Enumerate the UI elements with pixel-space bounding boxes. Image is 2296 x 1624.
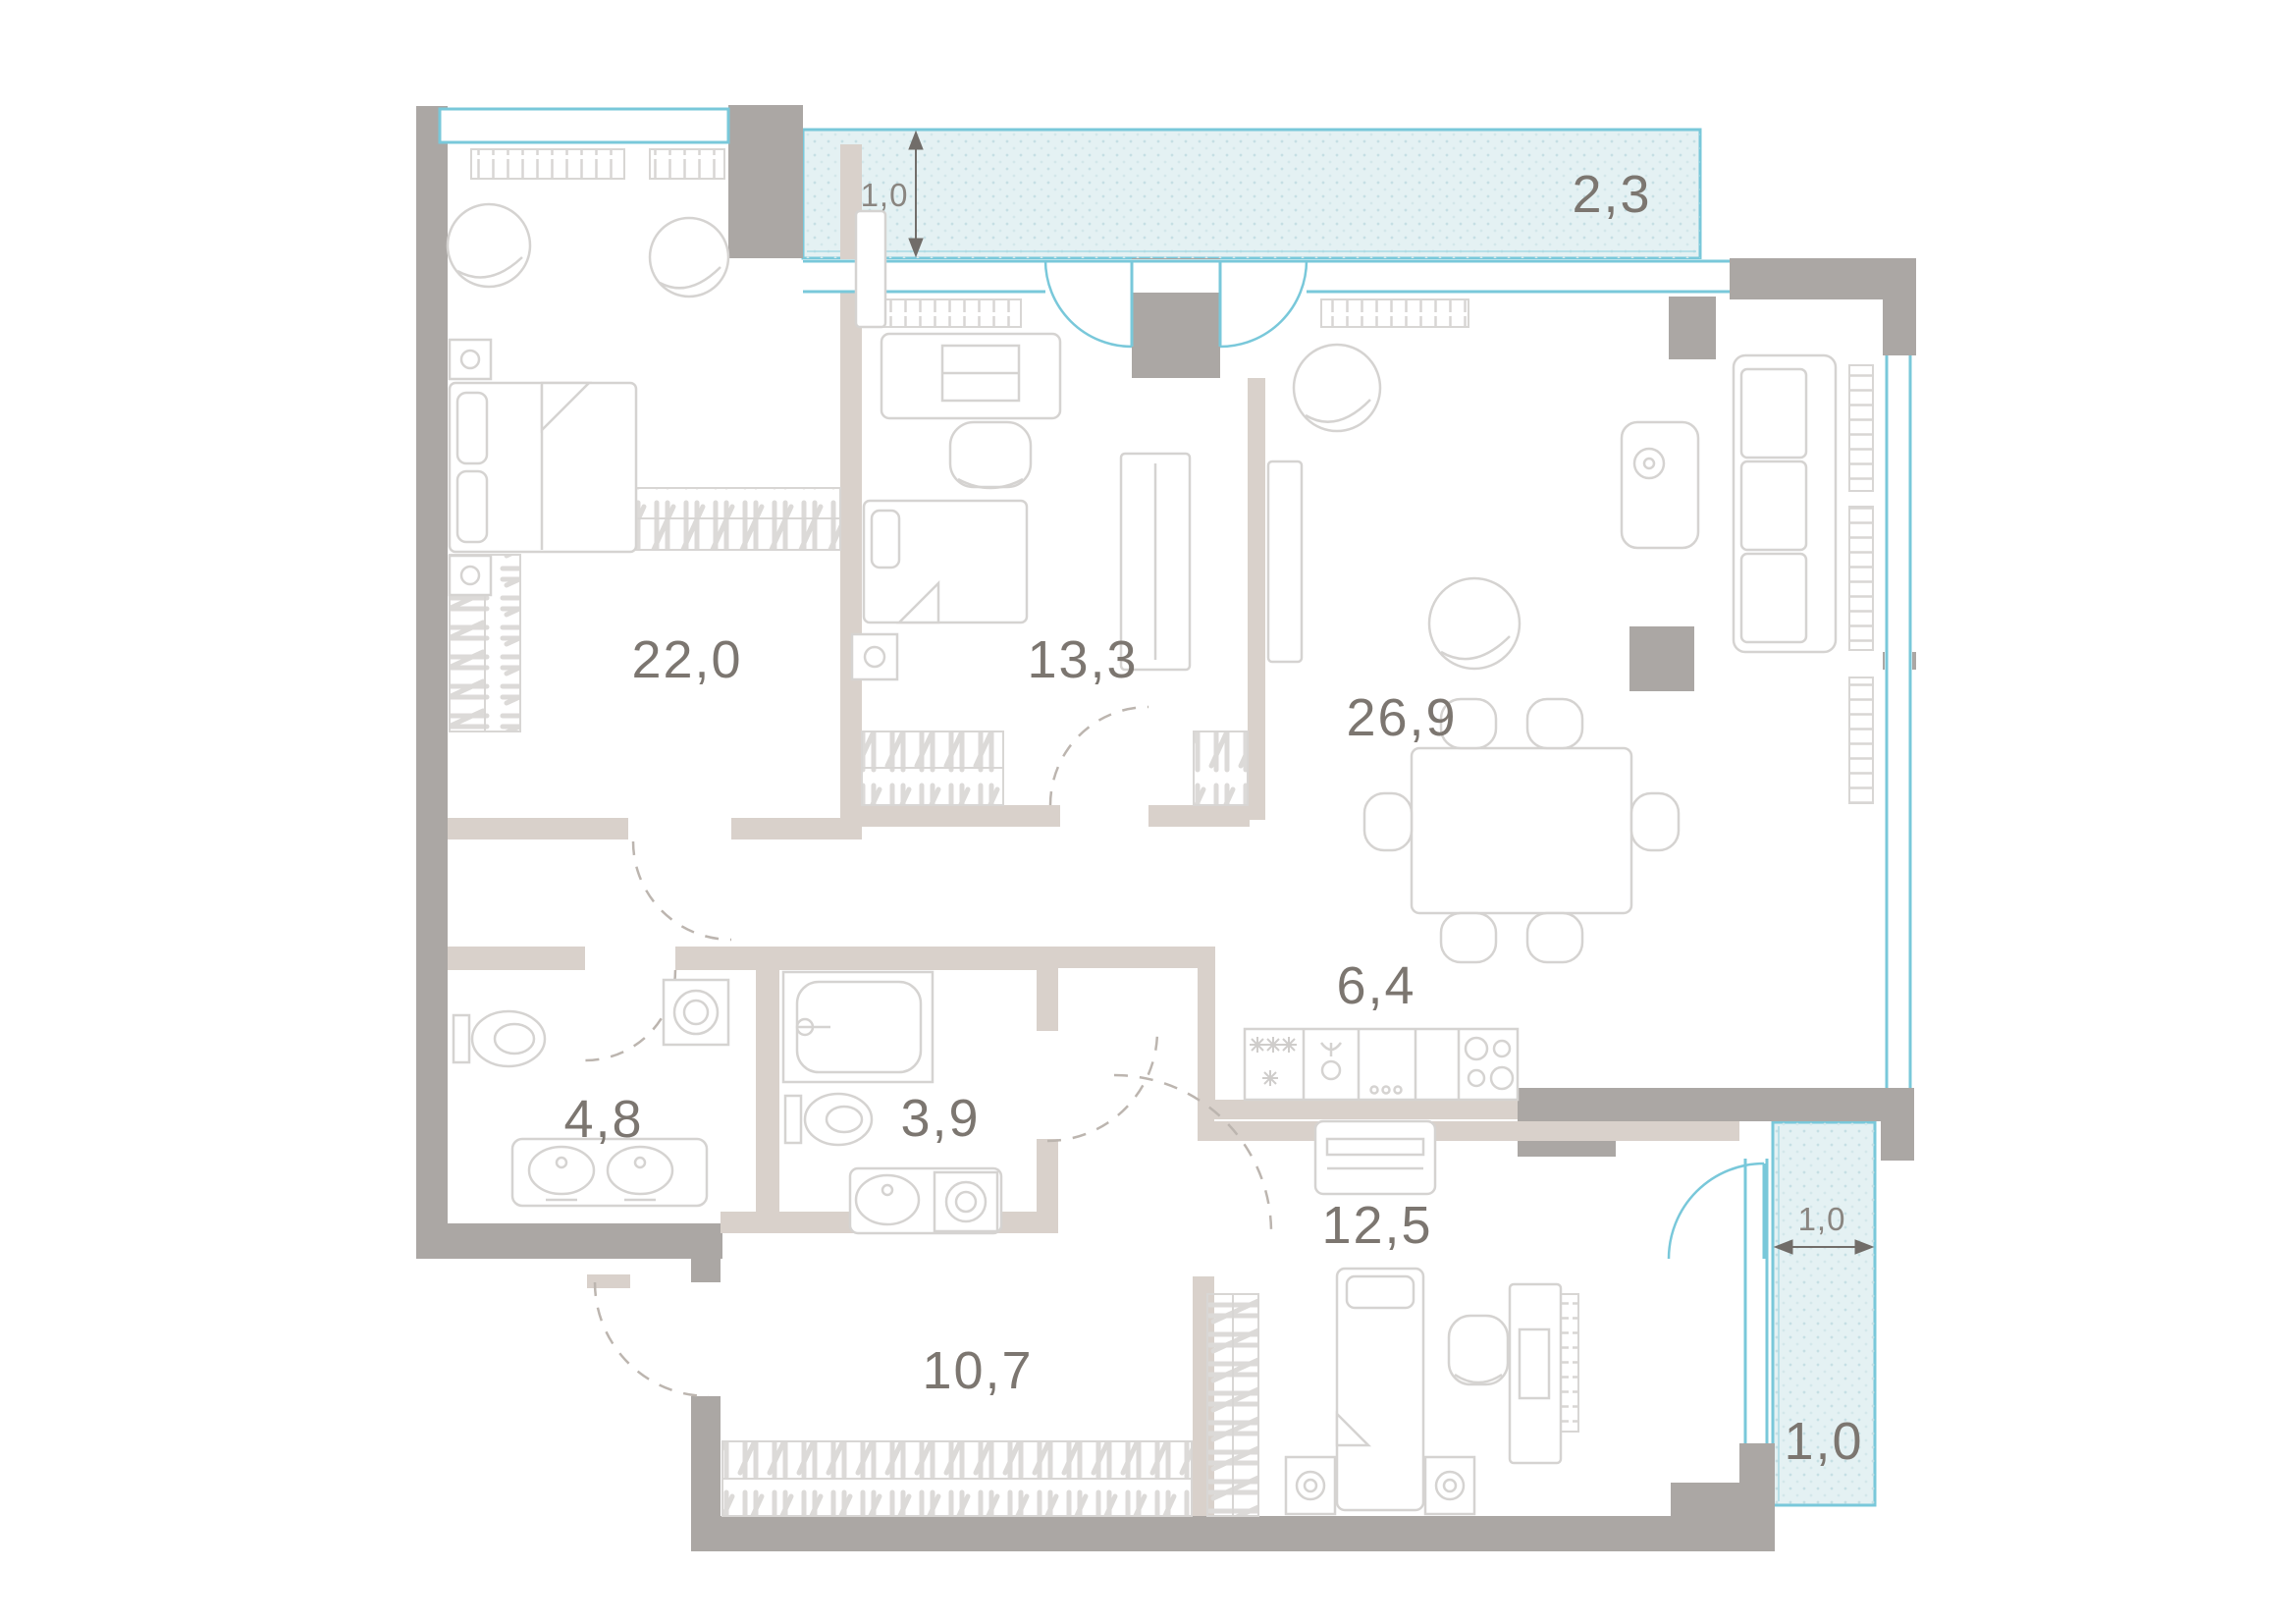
wall-kitchen-bottom (1213, 1100, 1518, 1119)
door-bedroom-kids-arc (1050, 707, 1148, 805)
pillow-icon (457, 393, 487, 463)
balcony-label-side: 1,0 (1784, 1411, 1863, 1472)
column-living-top (1669, 297, 1716, 359)
appliance-knob (1371, 1087, 1378, 1094)
window-band-balcony (803, 259, 1730, 293)
wall-left (416, 106, 448, 1225)
armchair-icon (448, 204, 530, 287)
wall-bedroom-main-bottom-a (448, 818, 628, 839)
furniture (448, 204, 1836, 1514)
balcony-top-zone (803, 130, 1700, 258)
room-label-bedroom-main: 22,0 (631, 629, 742, 690)
wall-bedroom-kids-bottom-b (1148, 805, 1250, 827)
room-label-living-room: 26,9 (1346, 687, 1457, 748)
wall-bath-divider (756, 947, 779, 1212)
exterior-walls (416, 105, 1916, 1551)
pillow-icon (1347, 1276, 1414, 1308)
wall-bedrooms-divider-low (840, 547, 862, 839)
wall-bottom-left (416, 1223, 722, 1259)
dining-table-icon (1412, 748, 1631, 913)
appliance-knob (1383, 1087, 1390, 1094)
sofa-cushion (1741, 369, 1806, 458)
dimension-label-balcony-top-depth: 1,0 (861, 177, 909, 214)
wall-corridor-kitchen (1058, 947, 1213, 968)
room-label-bathroom: 4,8 (563, 1089, 643, 1150)
nightstand-knob (461, 351, 479, 368)
wall-living-right-corner (1883, 299, 1916, 355)
wall-bottom (691, 1516, 1775, 1551)
pillow-icon (872, 511, 899, 568)
wall-bedrooms-divider (840, 144, 862, 547)
living-room-furniture (1268, 345, 1836, 962)
dining-chair-icon (1364, 793, 1412, 850)
peninsula-inner (1327, 1139, 1423, 1155)
wall-bath-top-a (448, 947, 585, 970)
sofa-cushion (1741, 554, 1806, 642)
kitchen-peninsula (1315, 1121, 1435, 1194)
radiator-living-right-3 (1849, 677, 1873, 803)
wall-bath-top-b (675, 947, 1058, 970)
door-shower-room-arc (1047, 1031, 1157, 1141)
dining-chair-icon (1527, 913, 1582, 962)
faucet-dot (635, 1158, 645, 1167)
wall-kitchen-junction (1198, 1100, 1214, 1141)
window-bedroom-main (440, 109, 728, 142)
nightstand-icon (1286, 1457, 1335, 1514)
floor-plan-canvas: 22,0 13,3 26,9 6,4 4,8 3,9 12,5 10,7 2,3… (0, 0, 2296, 1624)
radiator-bedroom-main-1 (471, 149, 624, 179)
wardrobe-bedroom-kids-2 (1194, 731, 1248, 805)
bedroom-kids-furniture (852, 334, 1190, 679)
bedroom-small-furniture (1286, 1269, 1561, 1514)
wall-shower-right-b (1037, 1139, 1058, 1214)
wall-bedroom-small-top (1214, 1121, 1739, 1141)
dresser-icon (856, 211, 885, 327)
pillow-icon (457, 471, 487, 542)
wall-bedroom-kids-bottom-a (862, 805, 1060, 827)
balcony-label-top: 2,3 (1572, 164, 1651, 225)
nightstand-knob (865, 647, 884, 667)
dining-chair-icon (1441, 913, 1496, 962)
column-living-mid (1629, 626, 1694, 691)
nightstand-knob (461, 567, 479, 584)
toilet-tank (785, 1096, 801, 1143)
balcony-top-texture (803, 130, 1700, 258)
window-living-right-fill (1885, 355, 1912, 1088)
armchair-icon (1429, 578, 1520, 669)
dimension-label-balcony-side-width: 1,0 (1798, 1201, 1846, 1238)
desk-chair-icon (1449, 1316, 1508, 1384)
room-label-hallway: 10,7 (922, 1340, 1033, 1401)
door-bathroom-arc (585, 970, 675, 1060)
room-label-shower-room: 3,9 (900, 1088, 980, 1149)
nightstand-icon (1425, 1457, 1474, 1514)
faucet-dot (557, 1158, 566, 1167)
kitchen-counter (1245, 1029, 1518, 1100)
radiator-living-right-1 (1849, 365, 1873, 491)
wall-corner-bedroom-small (1739, 1443, 1775, 1520)
radiator-bedroom-main-2 (650, 149, 724, 179)
wall-kids-living-divider (1248, 378, 1265, 820)
room-label-bedroom-small: 12,5 (1321, 1195, 1432, 1256)
wall-kitchen-left (1198, 947, 1215, 1100)
wall-shower-right-a (1037, 970, 1058, 1031)
faucet-dot (882, 1185, 892, 1195)
radiator-living-top (1321, 299, 1468, 327)
wall-bedroom-main-bottom-b (731, 818, 862, 839)
room-label-bedroom-kids: 13,3 (1027, 629, 1138, 690)
floor-plan-drawing (0, 0, 2296, 1624)
wall-living-top-right (1730, 258, 1916, 299)
desk-chair-icon (950, 422, 1031, 487)
room-label-kitchen: 6,4 (1336, 955, 1415, 1016)
appliance-knob (1395, 1087, 1402, 1094)
toilet-tank (454, 1015, 469, 1062)
door-bedroom-main-arc (633, 841, 731, 940)
entrance-door-stub (587, 1274, 630, 1288)
radiator-bedroom-kids (883, 299, 1021, 327)
sofa-cushion (1741, 461, 1806, 550)
dining-chair-icon (1527, 699, 1582, 748)
radiator-living-right-2 (1849, 507, 1873, 650)
pier-top (728, 105, 803, 258)
entrance-opening (689, 1282, 722, 1396)
coffee-table-icon (1622, 422, 1698, 548)
dining-chair-icon (1631, 793, 1679, 850)
monitor-icon (1520, 1329, 1549, 1398)
tv-console-icon (1268, 461, 1302, 662)
wall-kitchen-corner (1881, 1121, 1914, 1161)
armchair-icon (1294, 345, 1380, 431)
